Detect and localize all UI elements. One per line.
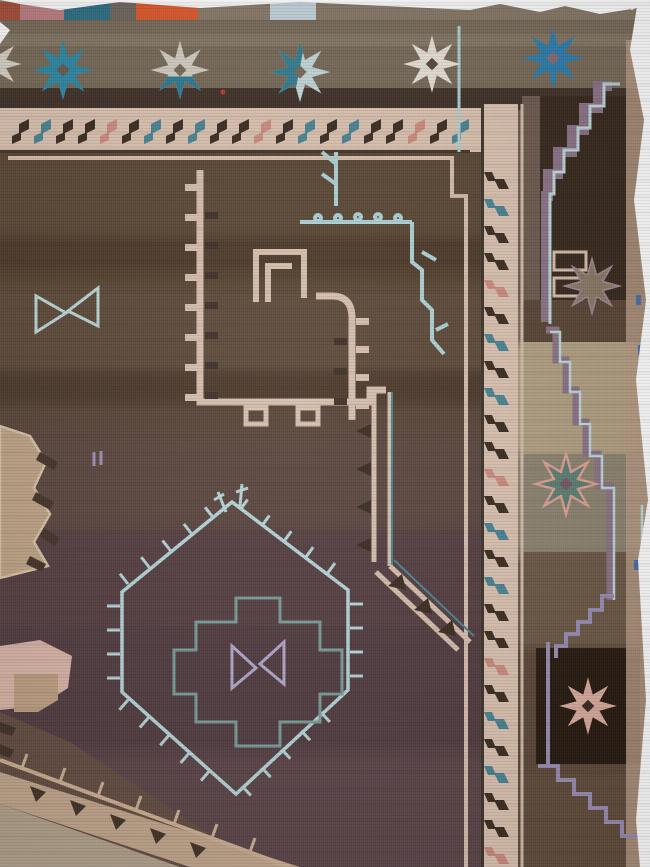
top-band-stars (0, 28, 650, 103)
star-teal-pink (536, 454, 597, 515)
bowtie-motif (36, 288, 98, 332)
lavender-fleck (94, 451, 101, 466)
hooked-medallion-motif (185, 170, 386, 424)
horn-teeth-dark (334, 338, 347, 405)
star-pink (559, 677, 617, 735)
stepped-inner-medallion (174, 598, 342, 746)
hook-teeth-dark (205, 212, 218, 399)
bottom-left-corner (0, 640, 300, 867)
hook-teeth-left (185, 184, 198, 401)
red-fleck (221, 90, 226, 95)
star-white (403, 35, 461, 93)
rug-photo (0, 0, 650, 867)
border-seam (0, 150, 470, 153)
spiral-box (256, 252, 304, 302)
camel-medallion (0, 426, 60, 578)
partial-star-left (0, 38, 22, 89)
serration-teeth (356, 424, 371, 552)
serrated-strip (356, 392, 474, 650)
diagonal-teeth (388, 574, 456, 636)
star-faded (565, 259, 619, 313)
pink-patch-inner (14, 674, 58, 712)
hollow-square (246, 408, 266, 424)
star-pale-blue (270, 42, 331, 103)
center-bowtie (232, 642, 284, 688)
star-blue (523, 28, 584, 89)
star-silver-teal (151, 41, 210, 100)
star-teal (33, 40, 94, 101)
hexagon-medallion (94, 451, 363, 796)
hollow-square (298, 408, 318, 424)
border-seam-vertical (481, 104, 484, 867)
rug-artwork (0, 0, 650, 867)
